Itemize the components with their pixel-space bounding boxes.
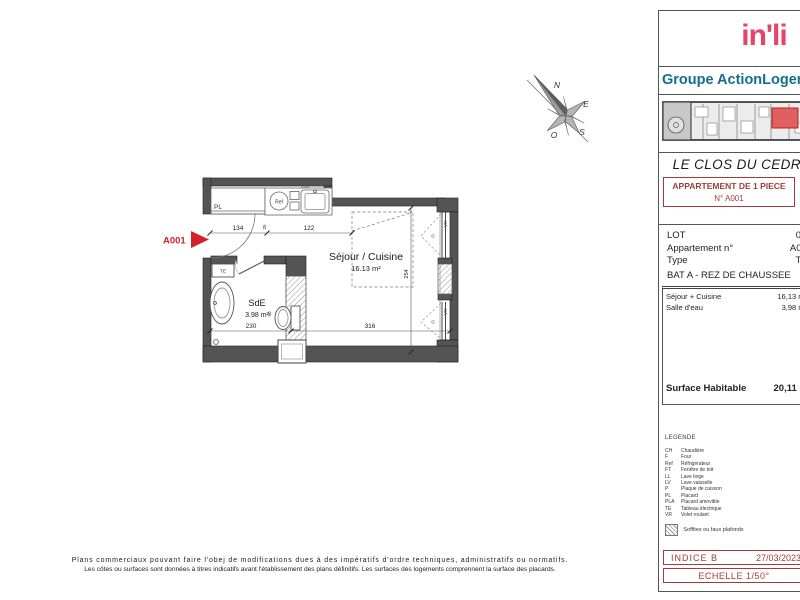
apartment-number-line: N° A001: [666, 194, 792, 203]
surface-value: 3,98 m²: [741, 303, 800, 312]
lot-value: 01: [766, 230, 800, 241]
vr-label-2: VR: [443, 308, 448, 315]
apartment-row: Appartement n° A001: [659, 243, 800, 256]
disclaimer: Plans commerciaux pouvant faire l'obej d…: [55, 557, 585, 573]
revision-date: 27/03/2023: [756, 553, 800, 563]
logo-section: in'li AL: [659, 11, 800, 67]
hob-plate2: [290, 202, 299, 210]
wall-sde-top-left: [211, 256, 237, 264]
wall-top-sejour: [324, 198, 445, 206]
surface-row: Salle d'eau 3,98 m²: [663, 303, 800, 314]
lot-row: LOT 01: [659, 230, 800, 243]
te-label: TE: [220, 269, 226, 275]
project-title: LE CLOS DU CEDRE: [659, 157, 800, 172]
wall-corner-topright: [437, 198, 458, 212]
disclaimer-line2: Les côtes ou surfaces sont données à tit…: [55, 566, 585, 573]
apartment-id-box: APPARTEMENT DE 1 PIECE N° A001: [663, 177, 795, 207]
dim-316: 316: [365, 323, 376, 330]
unit-label: A001: [163, 236, 186, 247]
legend-block: LEGENDE CHChaudière FFour RefRéfrigérate…: [665, 435, 744, 536]
surface-label: Salle d'eau: [666, 303, 703, 312]
bottom-niche-box: [278, 340, 306, 363]
legend-item: VRVolet roulant: [665, 512, 744, 518]
window1-casement-dashed: [421, 214, 441, 256]
apartment-value: A001: [766, 243, 800, 254]
sejour-room-label: Séjour / Cuisine: [329, 251, 403, 263]
sde-room-label: SdE: [248, 298, 265, 308]
group-name: Groupe ActionLogement: [662, 72, 800, 88]
sde-door-leaf: [239, 259, 268, 274]
dim-25: 25: [262, 224, 267, 230]
ref-label: Ref: [275, 200, 283, 206]
inli-logo: in'li: [741, 19, 786, 52]
window2-handle: [432, 321, 435, 324]
toilet-seat: [278, 310, 288, 327]
keyplan-thumbnail: [659, 95, 800, 150]
dim-230: 230: [246, 323, 257, 330]
dim-254: 254: [404, 269, 410, 278]
building-floor-line: BAT A - REZ DE CHAUSSEE: [659, 270, 800, 281]
scale-box: ECHELLE 1/50°: [663, 568, 800, 583]
type-label: Type: [667, 255, 688, 266]
dimensions-group: [210, 208, 450, 352]
project-title-section: LE CLOS DU CEDRE APPARTEMENT DE 1 PIECE …: [659, 157, 800, 225]
type-value: T1: [766, 255, 800, 266]
sde-area-label: 3.98 m²: [245, 312, 269, 319]
compass-o: O: [551, 130, 558, 140]
type-row: Type T1: [659, 255, 800, 268]
surface-row: Séjour + Cuisine 16,13 m²: [663, 292, 800, 303]
dim-122: 122: [304, 225, 315, 232]
group-name-section: Groupe ActionLogement: [659, 67, 800, 95]
window2-casement-dashed: [421, 303, 441, 339]
legend-title: LEGENDE: [665, 435, 744, 441]
washbasin-faucet: [214, 302, 217, 305]
wall-partition-column: [286, 256, 306, 276]
hatch-swatch-icon: [665, 524, 678, 536]
compass-s: S: [579, 127, 585, 137]
disclaimer-line1: Plans commerciaux pouvant faire l'obej d…: [55, 557, 585, 564]
vr-label-1: VR: [443, 220, 448, 227]
lot-label: LOT: [667, 230, 685, 241]
apartment-type-line: APPARTEMENT DE 1 PIECE: [666, 181, 792, 191]
apartment-label: Appartement n°: [667, 243, 733, 254]
window1-handle: [432, 235, 435, 238]
surfaces-table: Séjour + Cuisine 16,13 m² Salle d'eau 3,…: [662, 286, 800, 405]
wall-sde-top-right: [264, 256, 286, 264]
compass-rose-icon: N E O S: [515, 60, 598, 148]
wall-bottom: [203, 346, 458, 362]
floorplan-document: { "header": { "logo_text": "in'li", "log…: [0, 0, 800, 600]
surface-total-row: Surface Habitable 20,11 m²: [663, 383, 800, 394]
wall-left-stub: [203, 178, 211, 214]
keyplan-highlight-unit: [772, 108, 798, 128]
dashed-diagonal: [352, 213, 412, 232]
closet-label: PL: [214, 204, 222, 211]
joinery-tag: V08: [301, 184, 310, 189]
toilet-tank: [291, 306, 300, 330]
surface-total-value: 20,11 m²: [735, 383, 800, 394]
legend-soffites-row: Soffites ou faux plafonds: [665, 524, 744, 536]
hob-plate1: [290, 192, 299, 200]
revision-index-box: INDICE B 27/03/2023: [663, 550, 800, 565]
sink-faucet: [314, 190, 317, 193]
title-block-panel: in'li AL Groupe ActionLogement: [658, 10, 800, 592]
dim-90: 90: [267, 311, 272, 317]
compass-e: E: [583, 99, 589, 109]
dim-134: 134: [233, 225, 244, 232]
surface-label: Séjour + Cuisine: [666, 292, 721, 301]
wall-top-kitchen: [203, 178, 332, 186]
entrance-door-arc: [211, 214, 255, 258]
dimension-ticks: [208, 206, 453, 355]
scale-label: ECHELLE 1/50°: [664, 571, 800, 581]
keyplan-section: [659, 95, 800, 153]
sink-basin: [305, 194, 325, 210]
kitchen-group: [211, 188, 332, 215]
compass-n: N: [554, 80, 561, 90]
floor-drain-symbol: [214, 340, 219, 345]
unit-entry-arrow-icon: [191, 231, 209, 248]
soffites-label: Soffites ou faux plafonds: [683, 527, 743, 533]
indice-label: INDICE B: [671, 553, 718, 563]
surface-value: 16,13 m²: [741, 292, 800, 301]
sejour-area-label: 16.13 m²: [351, 264, 381, 273]
info-section: LOT 01 Appartement n° A001 Type T1 BAT A…: [659, 225, 800, 281]
